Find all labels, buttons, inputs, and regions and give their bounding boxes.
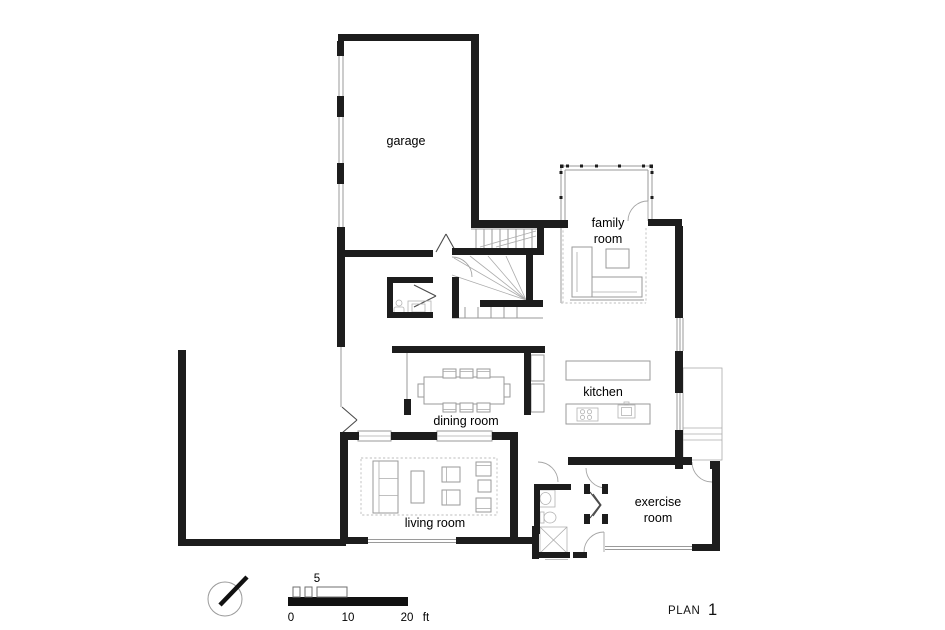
plan-title: PLAN 1 bbox=[668, 601, 717, 619]
closet-bifold-doors bbox=[590, 492, 601, 518]
plan-title-label: PLAN bbox=[668, 605, 700, 617]
room-label-exercise-line1: exercise bbox=[635, 495, 682, 509]
living-sofa bbox=[373, 461, 398, 513]
family-room-door bbox=[628, 201, 648, 221]
kitchen-island bbox=[566, 361, 650, 380]
room-label-family-line2: room bbox=[594, 232, 622, 246]
exercise-door-arc bbox=[692, 462, 712, 482]
plan-title-number: 1 bbox=[708, 601, 717, 619]
room-label-kitchen: kitchen bbox=[583, 385, 623, 399]
east-deck bbox=[683, 368, 722, 460]
side-chair bbox=[476, 462, 491, 476]
north-arrow-icon bbox=[208, 577, 247, 616]
living-room-furniture bbox=[361, 458, 497, 515]
family-coffee-table bbox=[606, 249, 629, 268]
room-label-garage: garage bbox=[387, 134, 426, 148]
dining-table bbox=[418, 369, 510, 412]
coffee-table bbox=[411, 471, 424, 503]
armchair bbox=[442, 467, 460, 482]
scale-tick-20: 20 bbox=[401, 612, 414, 624]
room-label-living: living room bbox=[405, 516, 465, 530]
side-chair bbox=[476, 498, 491, 512]
thin-lines-layer bbox=[339, 56, 722, 560]
room-label-dining: dining room bbox=[433, 414, 498, 428]
kitchen-cabinets bbox=[531, 355, 544, 412]
scale-tick-0: 0 bbox=[288, 612, 294, 624]
scale-tick-5: 5 bbox=[314, 573, 320, 585]
stairs-upper bbox=[471, 229, 539, 248]
patio-double-door bbox=[342, 407, 357, 433]
family-room-sofa bbox=[570, 247, 644, 300]
hall-door-arc-1 bbox=[538, 462, 558, 482]
kitchen-counter bbox=[566, 402, 650, 424]
stair-door-arc bbox=[452, 257, 472, 277]
scale-bar: 0 5 10 20 ft bbox=[288, 573, 430, 624]
bathroom-fixtures bbox=[536, 490, 567, 553]
scale-tick-10: 10 bbox=[342, 612, 355, 624]
room-label-exercise-line2: room bbox=[644, 511, 672, 525]
floor-plan-page: garage family room kitchen dining room l… bbox=[0, 0, 945, 630]
room-label-family-line1: family bbox=[592, 216, 625, 230]
side-table bbox=[478, 480, 491, 492]
scale-unit: ft bbox=[423, 612, 430, 624]
armchair bbox=[442, 490, 460, 505]
floor-plan-canvas: garage family room kitchen dining room l… bbox=[0, 0, 945, 630]
